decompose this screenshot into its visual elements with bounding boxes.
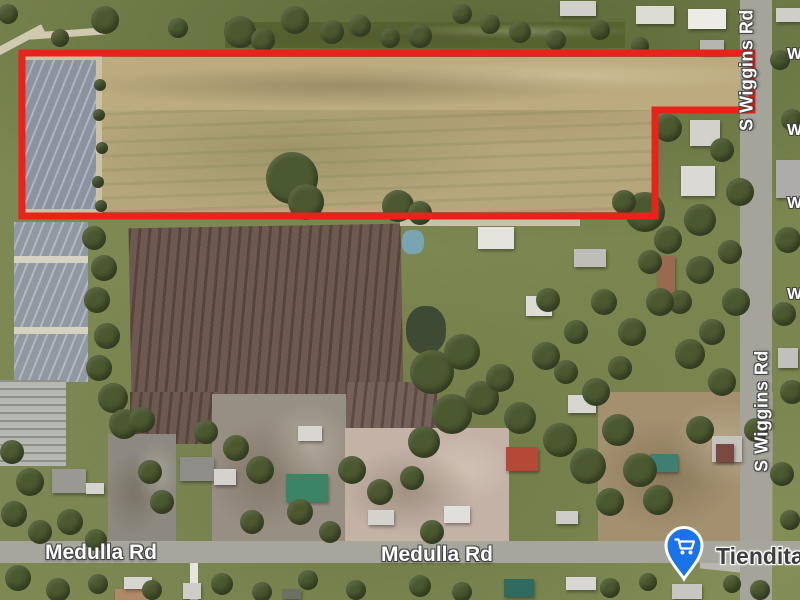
tree — [608, 356, 632, 380]
tree — [380, 28, 400, 48]
building-roof — [688, 9, 726, 29]
tree — [88, 574, 108, 594]
tree — [643, 485, 673, 515]
tree — [631, 37, 649, 55]
tree — [775, 227, 800, 253]
building-roof — [700, 40, 724, 54]
tree — [16, 468, 44, 496]
clipped-road-label-w-1: W — [787, 46, 800, 64]
tree — [710, 138, 734, 162]
building-roof — [776, 160, 800, 198]
tree — [84, 287, 110, 313]
tree — [726, 178, 754, 206]
terrain-field — [406, 306, 446, 354]
tree — [5, 565, 31, 591]
aerial-imagery — [0, 0, 800, 600]
tree — [150, 490, 174, 514]
terrain-field — [96, 57, 750, 110]
tree — [91, 6, 119, 34]
tree — [750, 580, 770, 600]
building-roof — [776, 8, 800, 22]
tree — [590, 20, 610, 40]
tree — [600, 578, 620, 598]
tree — [223, 435, 249, 461]
tree — [554, 360, 578, 384]
clipped-road-label-w-2: W — [787, 122, 800, 140]
tree — [770, 462, 794, 486]
poi-pin[interactable] — [661, 524, 707, 582]
building-roof — [636, 6, 674, 24]
tree — [251, 28, 275, 52]
tree — [194, 420, 218, 444]
tree — [675, 339, 705, 369]
tree — [346, 580, 366, 600]
building-roof — [298, 426, 322, 441]
tree — [596, 488, 624, 516]
tree — [281, 6, 309, 34]
tree — [654, 114, 682, 142]
tree — [546, 30, 566, 50]
building-roof — [214, 469, 236, 485]
tree — [618, 318, 646, 346]
tree — [564, 320, 588, 344]
tree — [723, 575, 741, 593]
tree — [486, 364, 514, 392]
building-roof — [672, 584, 702, 599]
tree — [94, 323, 120, 349]
tree — [582, 378, 610, 406]
tree — [0, 440, 24, 464]
building-roof — [504, 579, 534, 597]
building-roof — [180, 457, 214, 481]
building-roof — [478, 227, 514, 249]
terrain-field — [212, 394, 346, 542]
terrain-field — [14, 256, 88, 263]
building-roof — [506, 447, 538, 471]
building-roof — [86, 483, 104, 494]
tree — [93, 109, 105, 121]
tree — [142, 580, 162, 600]
tree — [298, 570, 318, 590]
tree — [367, 479, 393, 505]
tree — [408, 426, 440, 458]
tree — [772, 302, 796, 326]
building-roof — [560, 1, 596, 16]
terrain-field — [108, 434, 176, 542]
tree — [211, 573, 233, 595]
tree — [168, 18, 188, 38]
satellite-map[interactable]: S Wiggins Rd S Wiggins Rd Medulla Rd Med… — [0, 0, 800, 600]
tree — [686, 416, 714, 444]
tree — [480, 14, 500, 34]
tree — [246, 456, 274, 484]
tree — [57, 509, 83, 535]
tree — [722, 288, 750, 316]
building-roof — [681, 166, 715, 196]
tree — [408, 24, 432, 48]
tree — [420, 520, 444, 544]
tree — [252, 582, 272, 600]
tree — [288, 184, 324, 220]
tree — [639, 573, 657, 591]
tree — [240, 510, 264, 534]
tree — [129, 407, 155, 433]
tree — [95, 200, 107, 212]
tree — [699, 319, 725, 345]
tree — [708, 368, 736, 396]
building-roof — [444, 506, 470, 523]
tree — [0, 4, 18, 24]
tree — [686, 256, 714, 284]
terrain-field — [14, 327, 88, 334]
building-roof — [556, 511, 578, 524]
road-label-s-wiggins-rd-top: S Wiggins Rd — [737, 9, 758, 131]
tree — [509, 21, 531, 43]
terrain-field — [129, 224, 404, 401]
tree — [92, 176, 104, 188]
tree — [543, 423, 577, 457]
tree — [408, 201, 432, 225]
terrain-field — [0, 24, 45, 55]
tree — [51, 29, 69, 47]
tree — [287, 499, 313, 525]
tree — [780, 510, 800, 530]
tree — [452, 582, 472, 600]
terrain-field — [402, 230, 424, 254]
tree — [452, 4, 472, 24]
building-roof — [778, 348, 798, 368]
building-roof — [52, 469, 86, 493]
tree — [338, 456, 366, 484]
tree — [46, 578, 70, 600]
tree — [409, 575, 431, 597]
tree — [138, 460, 162, 484]
tree — [780, 380, 800, 404]
tree — [82, 226, 106, 250]
tree — [612, 190, 636, 214]
clipped-road-label-w-3: W — [787, 195, 800, 213]
tree — [400, 466, 424, 490]
tree — [94, 79, 106, 91]
poi-label[interactable]: Tiendita — [716, 543, 800, 570]
tree — [320, 20, 344, 44]
tree — [91, 255, 117, 281]
tree — [96, 142, 108, 154]
clipped-road-label-w-4: W — [787, 286, 800, 304]
tree — [718, 240, 742, 264]
building-roof — [566, 577, 596, 590]
road-label-medulla-rd-left: Medulla Rd — [45, 541, 157, 565]
building-roof — [283, 589, 301, 599]
tree — [86, 355, 112, 381]
tree — [1, 501, 27, 527]
tree — [591, 289, 617, 315]
tree — [570, 448, 606, 484]
building-roof — [286, 474, 328, 502]
terrain-field — [24, 60, 96, 209]
tree — [602, 414, 634, 446]
tree — [646, 288, 674, 316]
building-roof — [183, 583, 201, 599]
road-label-medulla-rd-center: Medulla Rd — [381, 543, 493, 567]
tree — [444, 334, 480, 370]
tree — [349, 15, 371, 37]
building-roof — [574, 249, 606, 267]
tree — [684, 204, 716, 236]
tree — [504, 402, 536, 434]
terrain-field — [14, 222, 88, 382]
tree — [638, 250, 662, 274]
road-label-s-wiggins-rd-mid: S Wiggins Rd — [752, 350, 773, 472]
tree — [319, 521, 341, 543]
tree — [654, 226, 682, 254]
tree — [623, 453, 657, 487]
tree — [536, 288, 560, 312]
building-roof — [368, 510, 394, 525]
building-roof — [716, 444, 734, 462]
